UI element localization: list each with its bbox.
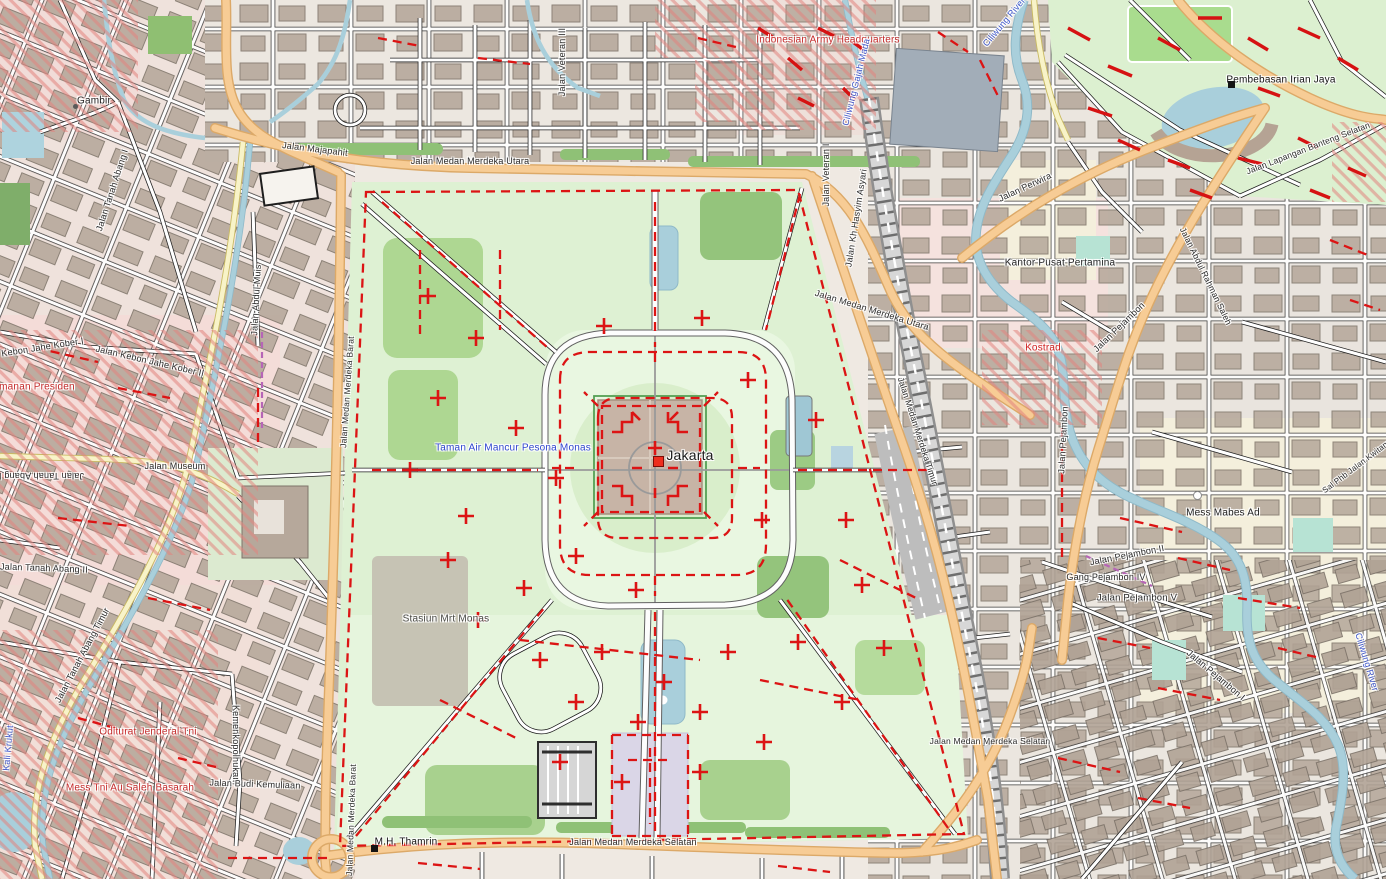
basemap [0,0,1386,879]
map-viewport[interactable]: JakartaTaman Air Mancur Pesona MonasStas… [0,0,1386,879]
